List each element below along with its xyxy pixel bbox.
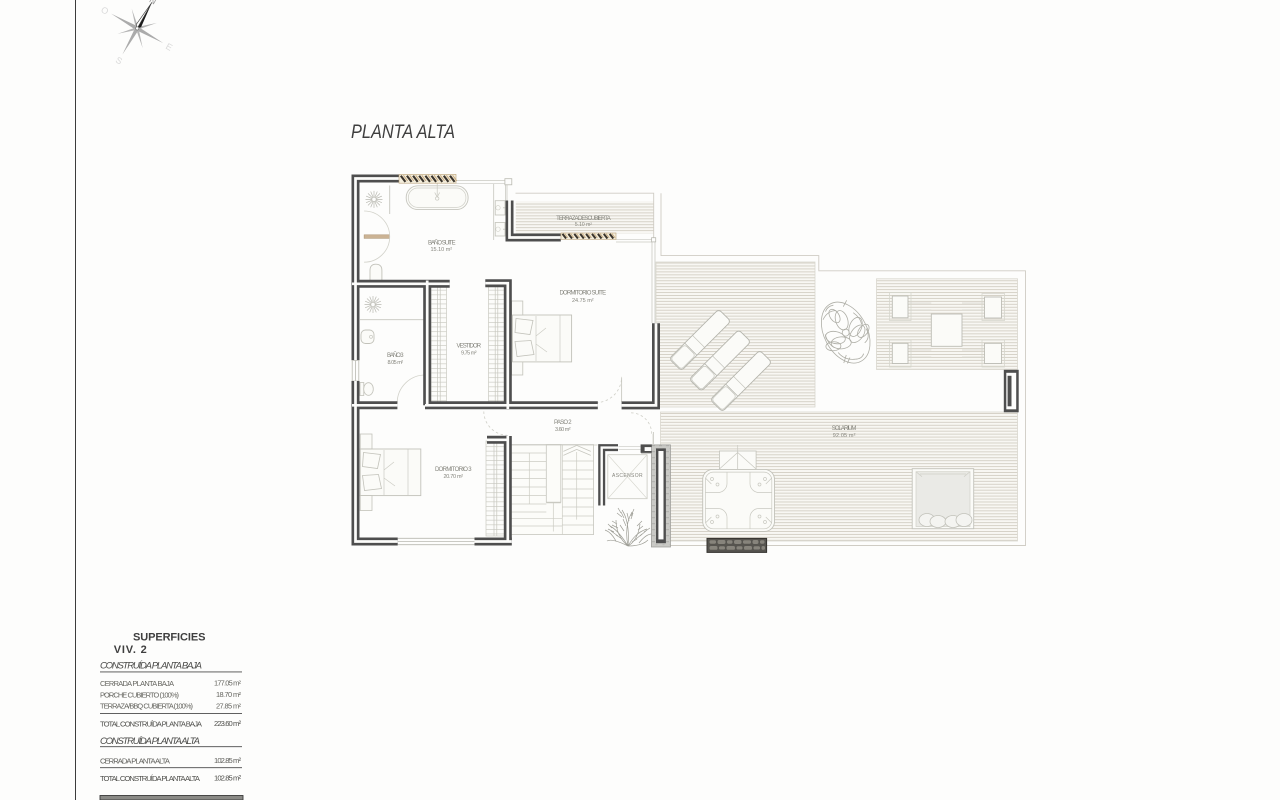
svg-text:20.70 m²: 20.70 m² — [444, 474, 464, 480]
svg-text:VIV. 2: VIV. 2 — [114, 644, 147, 656]
svg-text:E: E — [164, 41, 174, 53]
svg-text:ASCENSOR: ASCENSOR — [612, 473, 643, 479]
svg-text:N: N — [148, 0, 159, 7]
svg-text:BAÑO 3: BAÑO 3 — [387, 352, 404, 359]
svg-text:102.85 m²: 102.85 m² — [214, 774, 241, 783]
svg-text:CONSTRUÍDA PLANTA BAJA: CONSTRUÍDA PLANTA BAJA — [100, 661, 202, 672]
svg-text:PLANTA ALTA: PLANTA ALTA — [351, 122, 455, 143]
svg-text:PORCHE CUBIERTO (100%): PORCHE CUBIERTO (100%) — [100, 690, 179, 699]
svg-text:TOTAL CONSTRUÍDA PLANTA BAJA: TOTAL CONSTRUÍDA PLANTA BAJA — [100, 720, 203, 729]
svg-text:27.85 m²: 27.85 m² — [216, 701, 242, 710]
svg-text:O: O — [99, 5, 110, 17]
svg-text:DORMITORIO 3: DORMITORIO 3 — [435, 467, 472, 473]
svg-text:102.85 m²: 102.85 m² — [214, 756, 241, 765]
svg-text:CERRADA PLANTA BAJA: CERRADA PLANTA BAJA — [100, 679, 174, 688]
svg-text:PASO 2: PASO 2 — [554, 420, 572, 426]
svg-text:SOLARIUM: SOLARIUM — [832, 426, 857, 432]
svg-text:5.10 m²: 5.10 m² — [575, 222, 593, 228]
svg-text:223.60 m²: 223.60 m² — [214, 719, 241, 728]
svg-text:TOTAL CONSTRUÍDA PLANTA ALTA: TOTAL CONSTRUÍDA PLANTA ALTA — [100, 774, 201, 783]
svg-text:CERRADA PLANTA ALTA: CERRADA PLANTA ALTA — [100, 757, 171, 766]
svg-text:TERRAZA/BBQ CUBIERTA (100%): TERRAZA/BBQ CUBIERTA (100%) — [100, 702, 193, 711]
svg-text:S: S — [114, 55, 124, 67]
svg-text:SUPERFICIES: SUPERFICIES — [133, 632, 206, 644]
svg-text:9.75 m²: 9.75 m² — [461, 351, 477, 357]
svg-text:8.05 m²: 8.05 m² — [388, 360, 404, 366]
svg-text:BAÑO SUITE: BAÑO SUITE — [428, 240, 456, 247]
svg-text:CONSTRUÍDA PLANTA ALTA: CONSTRUÍDA PLANTA ALTA — [100, 736, 200, 747]
svg-text:DORMITORIO SUITE: DORMITORIO SUITE — [560, 291, 607, 297]
svg-text:15.10 m²: 15.10 m² — [431, 247, 453, 253]
svg-text:177.05 m²: 177.05 m² — [214, 679, 242, 688]
svg-text:18.70 m²: 18.70 m² — [216, 690, 242, 699]
svg-text:92.05 m²: 92.05 m² — [833, 433, 856, 439]
svg-text:VESTIDOR: VESTIDOR — [457, 344, 482, 350]
svg-text:24.75 m²: 24.75 m² — [572, 298, 594, 304]
svg-text:3.60 m²: 3.60 m² — [555, 427, 571, 433]
